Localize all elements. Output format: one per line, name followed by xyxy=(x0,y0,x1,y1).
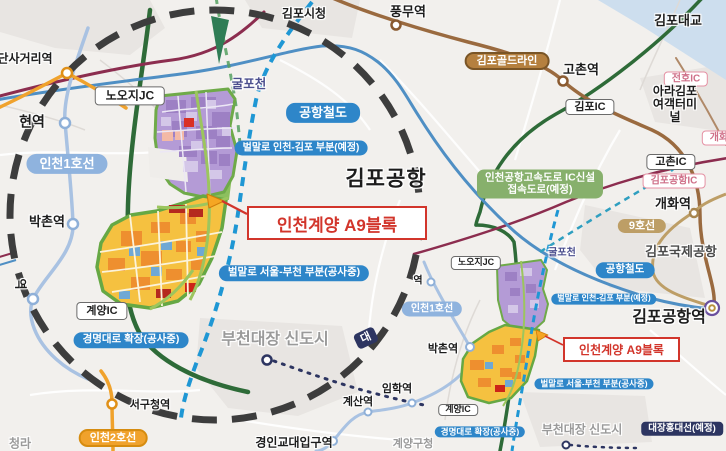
transit-location-map: 김포시청 풍무역 김포대교 단사거리역 현역 역 노오지JC 굴포천 공항철도 … xyxy=(0,0,726,451)
label-beolmal-incheon-gimpo: 벌말로 인천-김포 부분(예정) xyxy=(235,141,368,156)
label-gyeongmyeong-expansion-mini: 경명대로 확장(공사중) xyxy=(435,426,525,437)
label-station-partial-mini: 역 xyxy=(413,276,422,287)
label-pungmu-station: 풍무역 xyxy=(390,5,426,19)
label-gyeyang-ic: 계양IC xyxy=(76,302,127,320)
label-gimpo-intl-airport: 김포국제공항 xyxy=(645,245,717,259)
label-gulpocheon: 굴포천 xyxy=(232,78,267,92)
label-gochon-ic: 고촌IC xyxy=(646,154,695,170)
label-access-road-planned: 인천공항고속도로 IC신설 접속도로(예정) xyxy=(477,169,603,198)
daejang-station-dot-mini xyxy=(563,442,570,449)
label-ara-gimpo-terminal: 아라김포 여객터미널 xyxy=(650,85,701,125)
label-beolmal-seoul-bucheon-mini: 벌말로 서울-부천 부분(공사중) xyxy=(534,378,653,389)
label-dansageori-station: 단사거리역 xyxy=(0,52,53,65)
label-bucheon-daejang-newtown: 부천대장 신도시 xyxy=(221,331,329,349)
label-airport-railroad-mini: 공항철도 xyxy=(596,262,655,278)
callout-a9-block: 인천계양 A9블록 xyxy=(247,206,427,240)
label-gyeongin-edu-station: 경인교대입구역 xyxy=(255,436,332,449)
label-nooji-jc: 노오지JC xyxy=(95,86,165,105)
label-incheon-line1: 인천1호선 xyxy=(26,154,107,174)
label-beolmal-incheon-gimpo-mini: 벌말로 인천-김포 부분(예정) xyxy=(551,294,656,305)
label-incheon-line2: 인천2호선 xyxy=(79,429,148,447)
label-nooji-jc-mini: 노오지JC xyxy=(451,256,501,270)
label-line9: 9호선 xyxy=(618,219,666,233)
label-incheon-line1-mini: 인천1호선 xyxy=(402,302,462,317)
callout-a9-block-mini: 인천계양 A9블록 xyxy=(563,337,680,362)
label-gimpo-bridge: 김포대교 xyxy=(654,14,702,28)
label-gaehwa-station: 개화역 xyxy=(655,197,691,211)
label-gyeyang-ic-mini: 계양IC xyxy=(438,404,478,416)
daejang-station-dot xyxy=(263,356,272,365)
label-bakchon-station-mini: 박촌역 xyxy=(428,343,458,355)
label-gimpo-ic: 김포IC xyxy=(565,99,614,115)
label-airport-railroad: 공항철도 xyxy=(286,103,360,123)
label-imhak-station: 임학역 xyxy=(382,383,412,395)
label-gimpo-goldline: 김포골드라인 xyxy=(465,52,550,70)
label-bakchon-station: 박촌역 xyxy=(29,215,65,229)
green-wedge xyxy=(211,16,229,64)
label-gyesan-station: 계산역 xyxy=(343,396,373,408)
gimpo-airport-interchange-symbol xyxy=(705,301,719,315)
development-parcels-large xyxy=(97,89,237,309)
label-gyulhyeon-station-partial: 현역 xyxy=(19,114,45,129)
label-gaehwa-ic: 개화IC xyxy=(702,131,726,146)
label-bucheon-daejang-newtown-mini: 부천대장 신도시 xyxy=(542,423,623,436)
label-beolmal-seoul-bucheon: 벌말로 서울-부천 부분(공사중) xyxy=(219,265,369,281)
blue-road-stub xyxy=(0,260,16,266)
label-gimpo-airport-ic: 김포공항IC xyxy=(643,174,706,189)
label-daejang-hongdae-line: 대장홍대선(예정) xyxy=(641,422,723,436)
label-station-partial-vertical: 역 xyxy=(13,278,26,289)
label-gyeyang-gucheong: 계양구청 xyxy=(393,438,433,450)
label-cheongna: 청라 xyxy=(9,437,31,450)
label-gochon-station: 고촌역 xyxy=(563,63,599,77)
label-gyeongmyeong-expansion: 경명대로 확장(공사중) xyxy=(74,332,189,348)
label-gulpocheon-mini: 굴포천 xyxy=(548,248,576,259)
label-gimpo-city-hall: 김포시청 xyxy=(282,7,326,20)
label-seogucheong-station: 서구청역 xyxy=(130,399,170,411)
label-gimpo-airport-station: 김포공항역 xyxy=(632,309,706,327)
label-gimpo-airport: 김포공항 xyxy=(345,167,426,190)
